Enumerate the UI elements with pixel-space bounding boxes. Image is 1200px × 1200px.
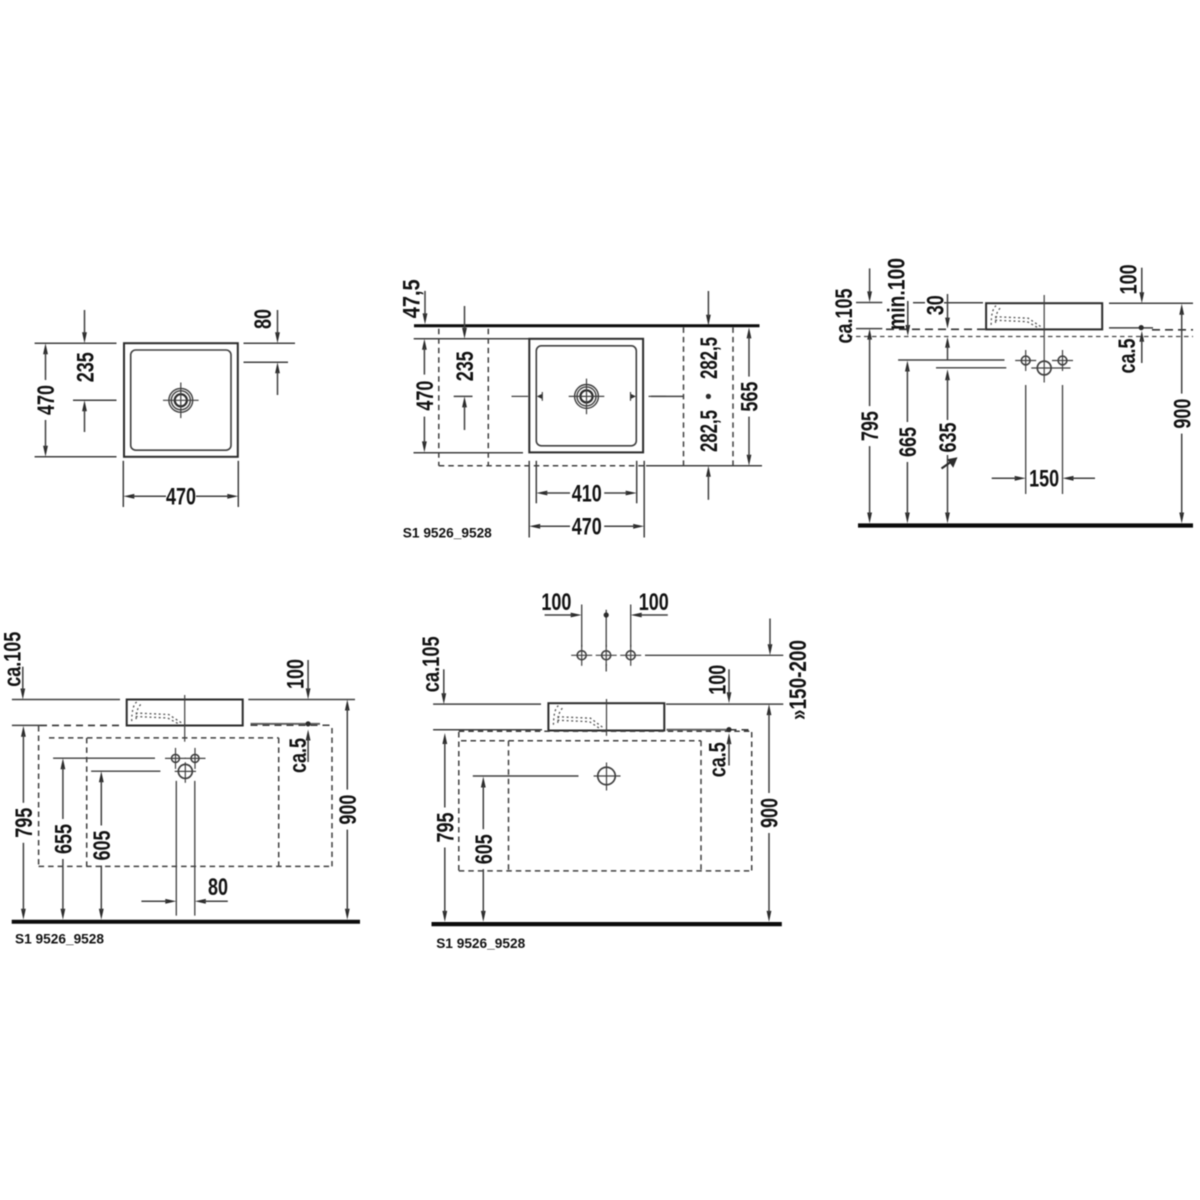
svg-text:min.100: min.100 <box>884 258 911 330</box>
svg-text:100: 100 <box>283 659 310 689</box>
svg-text:655: 655 <box>51 824 78 854</box>
svg-text:900: 900 <box>757 798 784 828</box>
svg-text:ca.105: ca.105 <box>418 636 445 692</box>
svg-text:100: 100 <box>1116 264 1143 294</box>
svg-text:S1 9526_9528: S1 9526_9528 <box>403 524 492 540</box>
svg-text:605: 605 <box>471 834 498 864</box>
svg-text:100: 100 <box>639 589 669 616</box>
svg-text:ca.105: ca.105 <box>831 289 858 344</box>
svg-text:795: 795 <box>432 813 459 843</box>
svg-text:30: 30 <box>922 295 949 315</box>
svg-text:80: 80 <box>250 309 277 329</box>
svg-text:635: 635 <box>935 423 962 453</box>
svg-text:S1 9526_9528: S1 9526_9528 <box>15 930 104 946</box>
svg-text:100: 100 <box>541 589 571 616</box>
svg-text:»150-200: »150-200 <box>785 640 812 720</box>
svg-text:565: 565 <box>737 382 764 412</box>
svg-text:235: 235 <box>72 352 99 382</box>
svg-text:470: 470 <box>166 484 196 511</box>
svg-text:470: 470 <box>572 514 602 541</box>
svg-text:665: 665 <box>895 427 922 457</box>
svg-text:282,5: 282,5 <box>696 410 723 452</box>
svg-text:470: 470 <box>33 385 60 415</box>
svg-text:150: 150 <box>1029 466 1059 493</box>
svg-text:47,5: 47,5 <box>398 279 425 318</box>
svg-text:410: 410 <box>572 481 602 508</box>
svg-text:605: 605 <box>89 831 116 861</box>
svg-text:ca.5: ca.5 <box>1114 339 1141 374</box>
svg-text:235: 235 <box>452 351 479 381</box>
svg-text:80: 80 <box>208 874 228 901</box>
svg-text:ca.5: ca.5 <box>285 738 312 773</box>
svg-text:S1 9526_9528: S1 9526_9528 <box>436 935 525 951</box>
svg-text:100: 100 <box>704 665 731 695</box>
svg-text:282,5: 282,5 <box>696 337 723 379</box>
svg-text:ca.5: ca.5 <box>704 742 731 777</box>
svg-text:470: 470 <box>412 381 439 411</box>
svg-text:900: 900 <box>335 795 362 825</box>
svg-text:900: 900 <box>1169 399 1196 429</box>
svg-text:795: 795 <box>857 411 884 441</box>
svg-text:795: 795 <box>11 808 38 838</box>
